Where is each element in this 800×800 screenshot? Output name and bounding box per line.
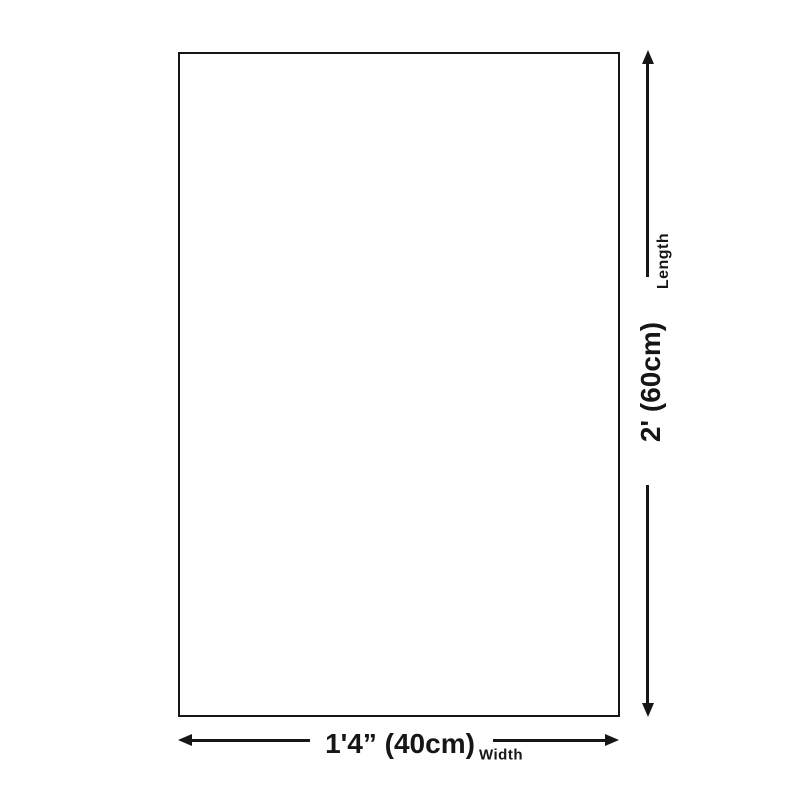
length-value: 2' (60cm) [637,322,665,442]
width-arrow-line-right [493,739,607,742]
length-arrow-line-bottom [646,485,649,705]
length-arrow-line-top [646,61,649,277]
dimension-diagram: Length 2' (60cm) 1'4” (40cm) Width [0,0,800,800]
width-arrow-line-left [190,739,310,742]
width-value: 1'4” (40cm) [325,730,475,758]
arrow-down-icon [642,703,654,717]
product-outline-rect [178,52,620,717]
width-label: Width [479,748,523,763]
arrow-right-icon [605,734,619,746]
length-label: Length [656,233,672,289]
